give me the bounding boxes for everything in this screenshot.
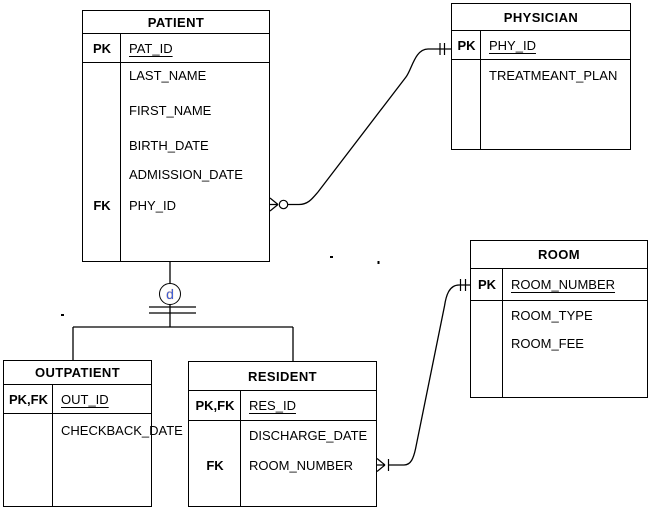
patient-attr-admission-date: ADMISSION_DATE: [129, 167, 243, 183]
fk-label: FK: [83, 198, 121, 214]
table-outpatient-title: OUTPATIENT: [4, 361, 151, 385]
table-resident-pk-row: PK,FK RES_ID: [189, 391, 376, 421]
room-attr-room-fee: ROOM_FEE: [511, 336, 584, 352]
stray-dot: [378, 261, 380, 264]
table-room: ROOM PK ROOM_NUMBER ROOM_TYPE ROOM_FEE: [470, 240, 648, 398]
stray-dot: [61, 314, 64, 316]
physician-attr-phy-id: PHY_ID: [481, 38, 536, 53]
one-mandatory-ticks-icon: [461, 279, 466, 291]
room-attr-room-type: ROOM_TYPE: [511, 308, 593, 324]
table-room-pk-row: PK ROOM_NUMBER: [471, 269, 647, 301]
patient-attr-birth-date: BIRTH_DATE: [129, 138, 209, 154]
one-mandatory-ticks-icon: [440, 43, 445, 55]
patient-attr-last-name: LAST_NAME: [129, 68, 206, 84]
table-outpatient: OUTPATIENT PK,FK OUT_ID CHECKBACK_DATE: [3, 360, 152, 507]
crow-foot-many-icon: [377, 459, 389, 472]
pk-label: PK: [83, 41, 121, 56]
table-outpatient-pk-row: PK,FK OUT_ID: [4, 385, 151, 414]
table-patient-title: PATIENT: [83, 11, 269, 34]
total-specialization-double-bar-icon: [149, 307, 196, 313]
er-diagram-canvas: PATIENT PK PAT_ID LAST_NAME FIRST_NAME B…: [0, 0, 651, 511]
optional-circle-icon: [279, 200, 287, 208]
table-patient: PATIENT PK PAT_ID LAST_NAME FIRST_NAME B…: [82, 10, 270, 262]
table-resident-title: RESIDENT: [189, 362, 376, 391]
resident-attr-res-id: RES_ID: [241, 398, 296, 413]
specialization-hierarchy-lines: [73, 262, 293, 361]
resident-attr-room-number: ROOM_NUMBER: [249, 458, 353, 474]
stray-marks: [61, 256, 380, 316]
resident-room-connector: [377, 279, 470, 472]
patient-attr-phy-id: PHY_ID: [129, 198, 176, 214]
physician-attr-treatmeant-plan: TREATMEANT_PLAN: [489, 68, 617, 84]
table-patient-key-column: [83, 34, 121, 261]
fk-label: FK: [189, 458, 241, 474]
patient-attr-first-name: FIRST_NAME: [129, 103, 211, 119]
pk-label: PK: [452, 38, 481, 53]
patient-physician-connector: [270, 43, 451, 211]
disjoint-circle: d: [159, 283, 181, 305]
table-physician-title: PHYSICIAN: [452, 4, 630, 31]
pk-fk-label: PK,FK: [189, 398, 241, 413]
relationship-line: [288, 49, 451, 205]
stray-dot: [330, 256, 333, 258]
pk-fk-label: PK,FK: [4, 392, 53, 407]
patient-attr-pat-id: PAT_ID: [121, 41, 173, 56]
relationship-line: [389, 285, 471, 465]
room-attr-room-number: ROOM_NUMBER: [503, 277, 615, 292]
outpatient-attr-out-id: OUT_ID: [53, 392, 109, 407]
table-resident: RESIDENT PK,FK RES_ID DISCHARGE_DATE ROO…: [188, 361, 377, 507]
table-patient-pk-row: PK PAT_ID: [83, 34, 269, 63]
table-physician-pk-row: PK PHY_ID: [452, 31, 630, 60]
table-room-title: ROOM: [471, 241, 647, 269]
outpatient-attr-checkback-date: CHECKBACK_DATE: [61, 423, 183, 439]
disjoint-label: d: [166, 286, 174, 302]
table-physician: PHYSICIAN PK PHY_ID TREATMEANT_PLAN: [451, 3, 631, 150]
crow-foot-many-icon: [270, 198, 278, 211]
pk-label: PK: [471, 277, 503, 292]
resident-attr-discharge-date: DISCHARGE_DATE: [249, 428, 367, 444]
